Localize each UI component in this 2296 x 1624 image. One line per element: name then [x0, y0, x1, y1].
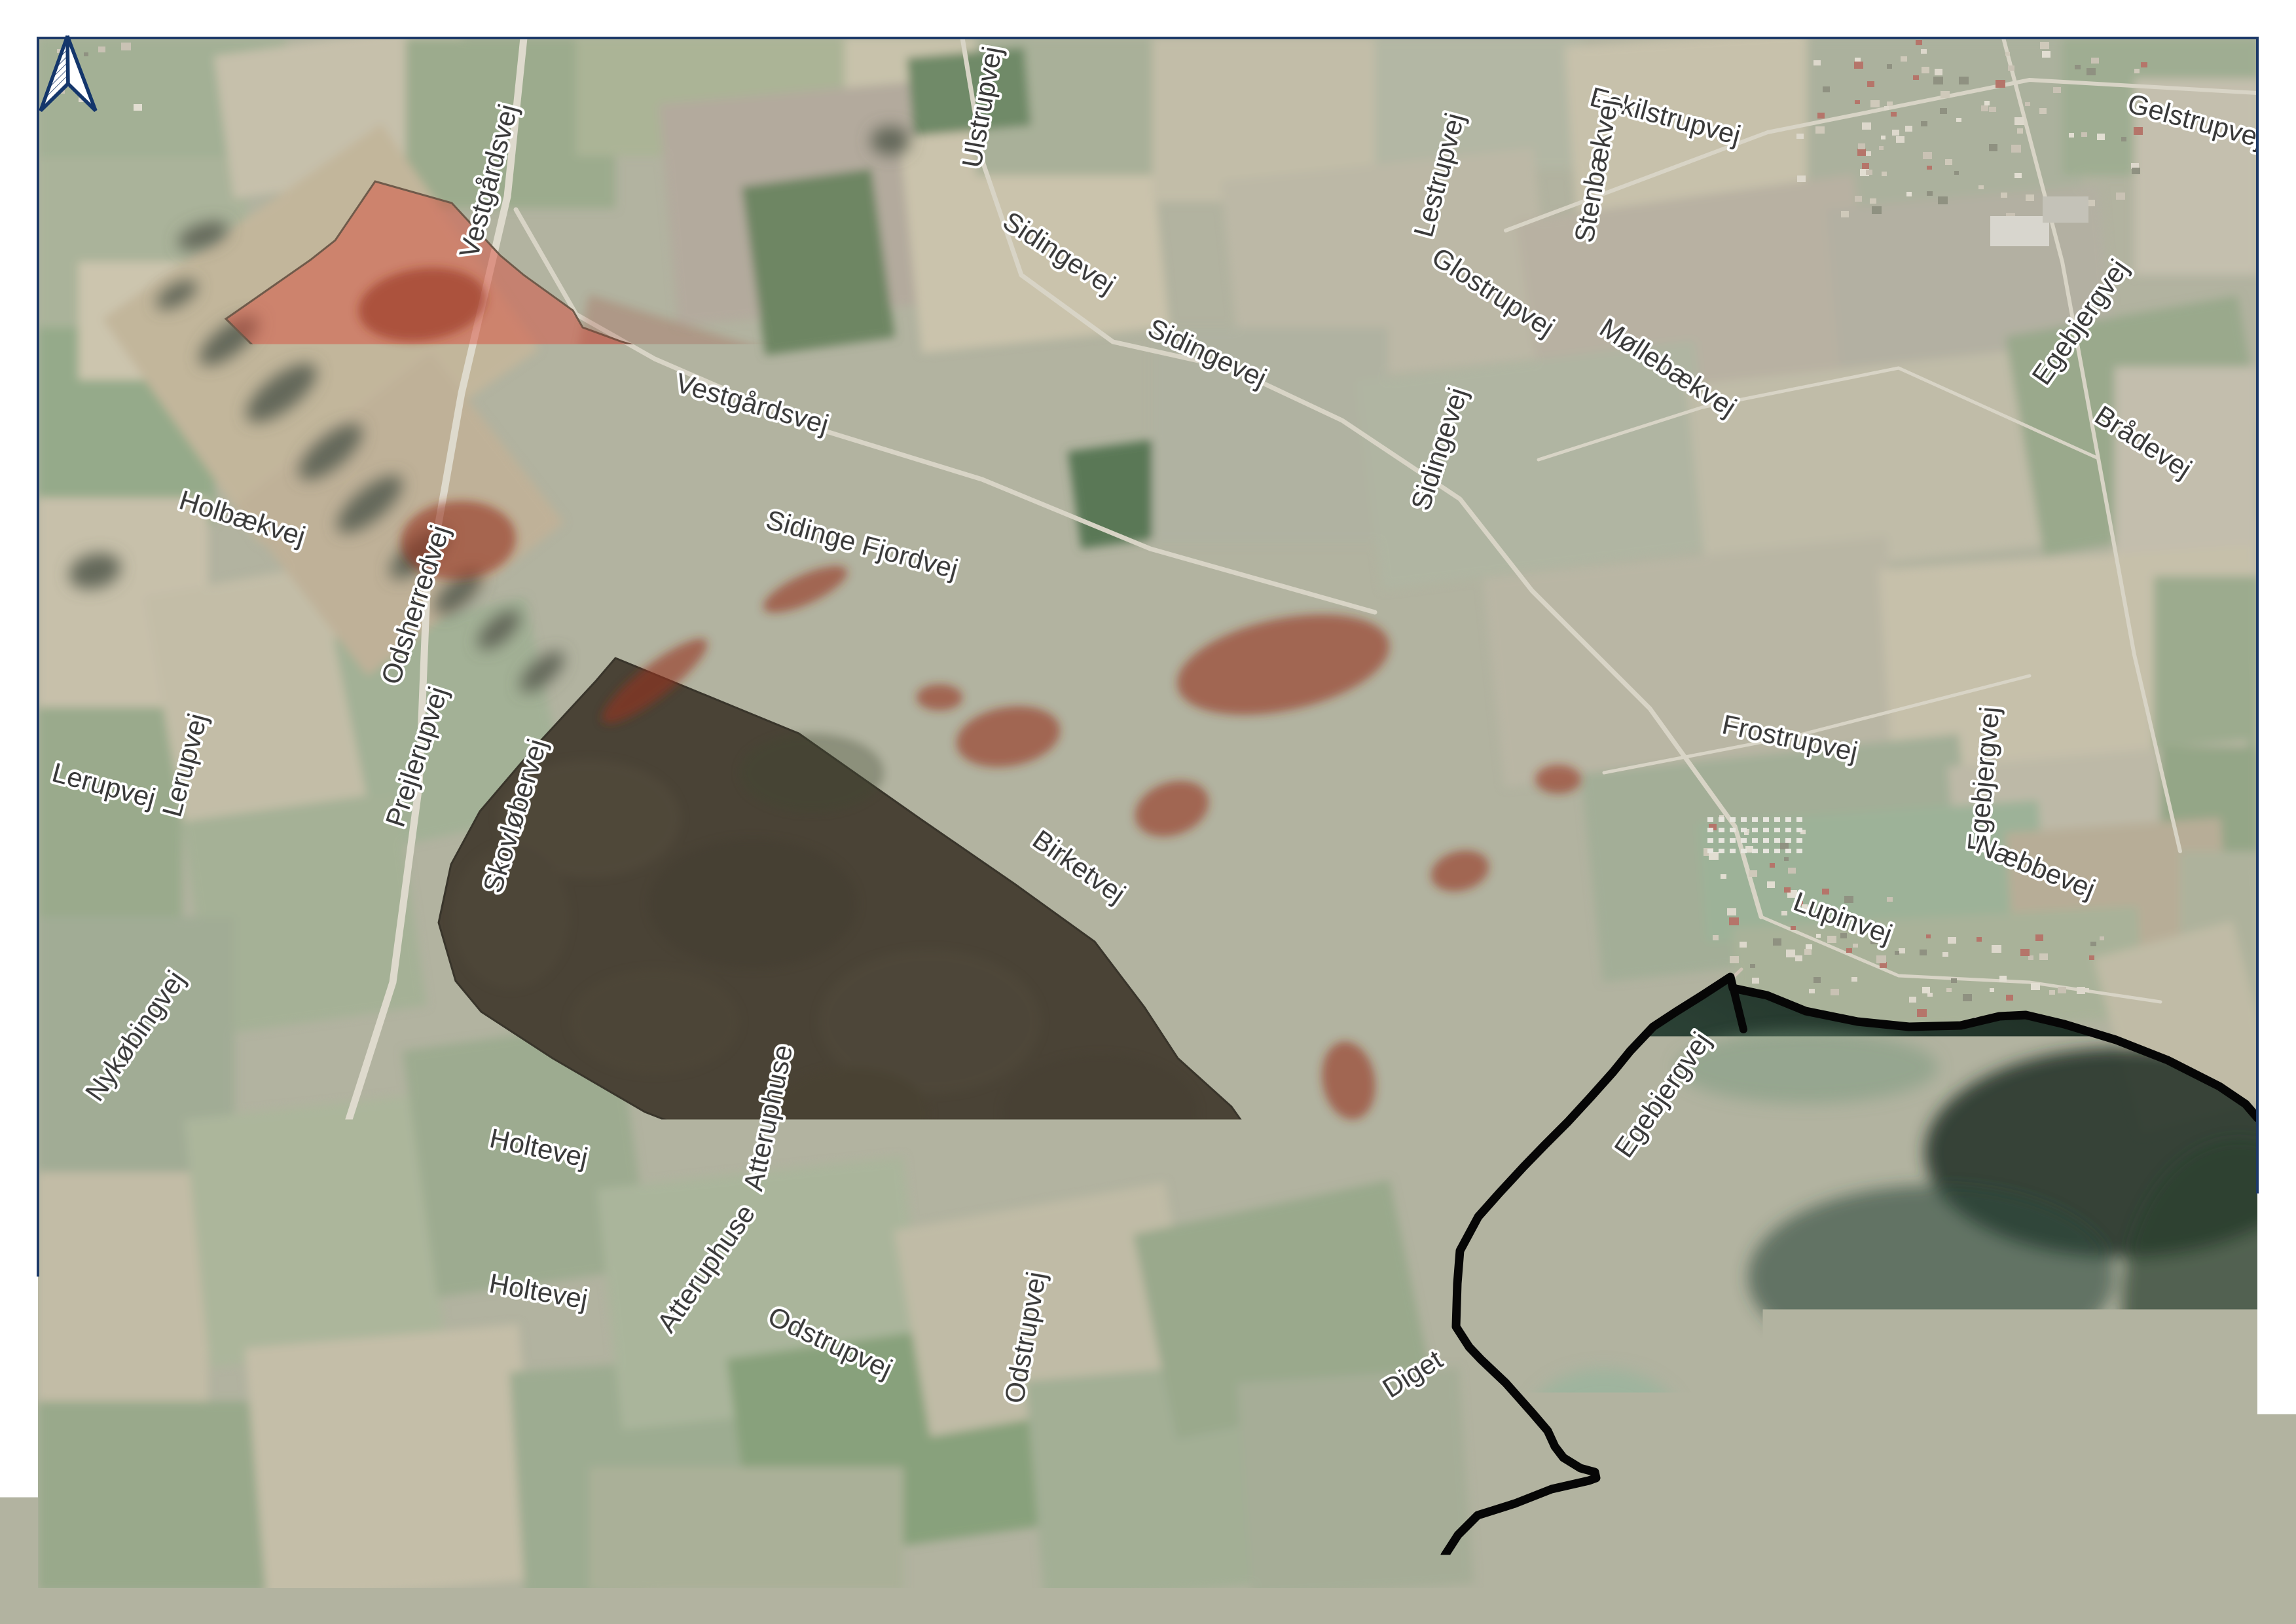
- svg-text:600: 600: [317, 1485, 361, 1515]
- svg-text:ODSHERRED: ODSHERRED: [1955, 1415, 2116, 1445]
- svg-text:300: 300: [227, 1485, 271, 1515]
- svg-text:0: 0: [151, 1485, 166, 1515]
- svg-text:300: 300: [48, 1485, 92, 1515]
- svg-text:Undersøgelsesområde - Sidinge: Undersøgelsesområde - Sidinge fjord: [1495, 1368, 1906, 1395]
- svg-text:© GeoDanmark, Odsherred Kommun: © GeoDanmark, Odsherred Kommune og...: [41, 1551, 547, 1579]
- svg-text:900: 900: [407, 1485, 452, 1515]
- svg-text:1.200 m: 1.200 m: [492, 1485, 590, 1515]
- svg-text:KOMMUNE: KOMMUNE: [1961, 1445, 2117, 1475]
